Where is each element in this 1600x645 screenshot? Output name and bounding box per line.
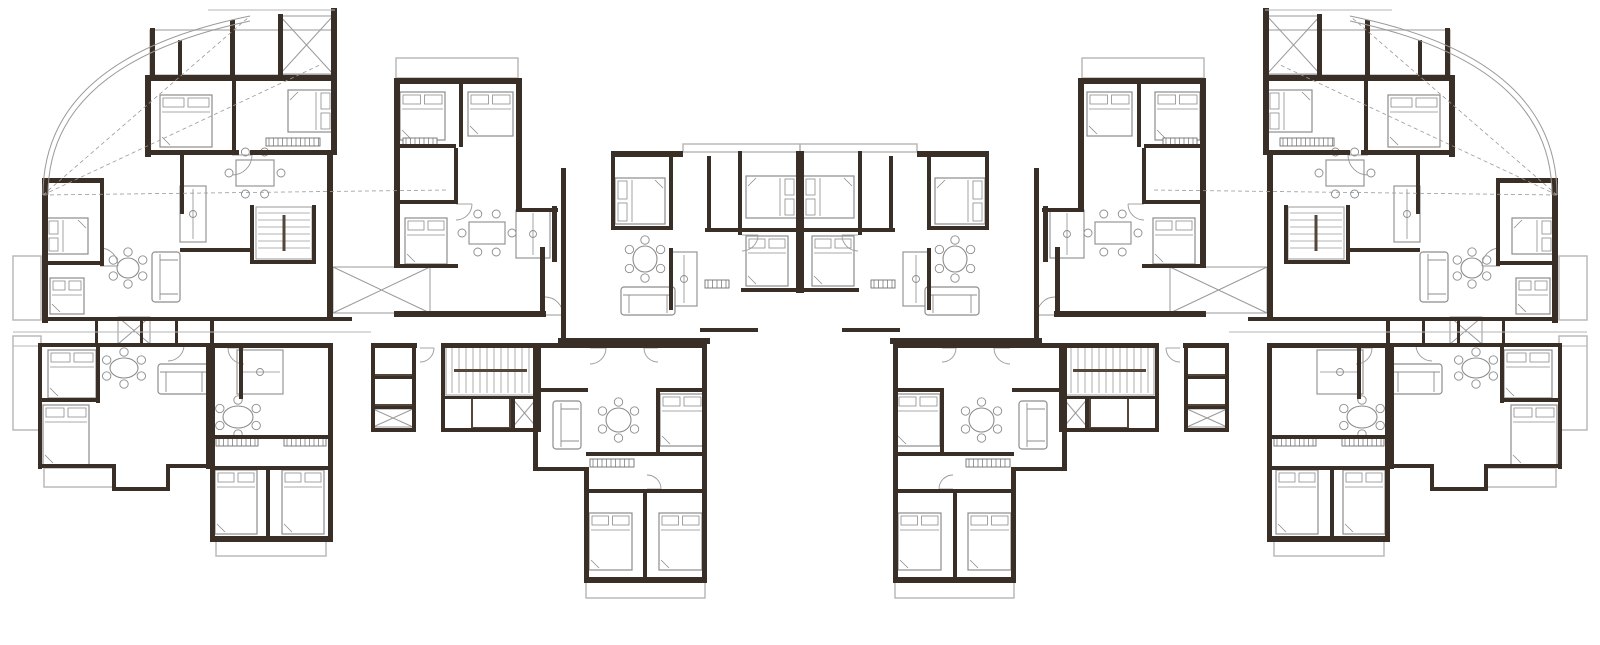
elevator-shaft [1187,377,1227,405]
wall-segment [1284,260,1350,264]
wall-segment [96,345,100,403]
wall-segment [669,248,673,310]
wall-segment [1059,396,1159,399]
chair-icon [120,348,128,356]
sofa-icon [1420,252,1448,302]
wall-segment [394,78,522,84]
wall-segment [1284,205,1288,263]
wall-segment [1496,178,1558,183]
wall-segment [210,343,333,348]
wall-segment [927,156,931,230]
sofa-icon [553,401,581,449]
wall-segment [1155,343,1159,432]
dining-table-round-icon [110,358,138,378]
chair-icon [1454,356,1462,364]
wall-segment [278,14,283,78]
wall-segment [112,487,170,491]
wall-segment [1502,398,1562,402]
wall-segment [38,343,42,469]
wall-segment [371,376,414,379]
floor-plan-svg [0,0,1600,645]
bed-icon [405,218,447,264]
chair-icon [216,421,224,429]
bed-icon [1153,218,1195,264]
chair-icon [252,421,260,429]
chair-icon [1100,210,1108,218]
chair-icon [492,210,500,218]
chair-icon [109,272,117,280]
wall-segment [1263,75,1455,81]
wall-segment [239,343,243,399]
chair-icon [951,274,959,282]
chair-icon [109,256,117,264]
wall-segment [1267,343,1390,348]
chair-icon [1340,421,1348,429]
chair-icon [458,229,466,237]
wall-segment [738,151,742,235]
wardrobe-hatch [266,138,320,146]
wall-segment [371,406,414,409]
chair-icon [277,169,285,177]
wall-segment [1183,343,1229,348]
dining-table-round-icon [633,246,657,272]
wall-segment [533,343,538,393]
wall-segment [1142,148,1146,204]
chair-icon [993,425,1001,433]
chair-icon [120,380,128,388]
chair-icon [656,264,664,272]
wall-segment [927,226,989,230]
bed-icon [659,513,702,570]
chair-icon [1472,380,1480,388]
wall-segment [889,156,893,232]
wall-segment [702,343,707,583]
chair-icon [1340,404,1348,412]
wall-segment [1558,343,1562,469]
wall-segment [1062,388,1067,471]
chair-icon [961,407,969,415]
wall-segment [842,328,900,332]
chair-icon [630,407,638,415]
dining-table-round-icon [969,408,994,432]
wall-segment [42,261,104,265]
wall-segment [533,388,538,471]
wall-segment [705,228,800,232]
wall-segment [894,388,944,392]
wall-segment [312,205,316,263]
wall-segment [210,343,215,541]
wall-segment [893,343,1067,348]
wall-segment [42,317,352,321]
wall-segment [1385,343,1390,541]
wall-segment [145,75,151,157]
dining-table-icon [1095,222,1131,244]
wall-segment [1011,467,1016,583]
wall-segment [1270,435,1390,439]
bed-icon [803,176,854,218]
elevator-shaft [373,377,413,405]
dining-table-round-icon [223,406,253,428]
bed-icon [935,178,985,224]
wall-segment [454,148,458,204]
wall-segment [1496,178,1500,266]
chair-icon [641,274,649,282]
bed-icon [812,236,854,286]
bed-icon [1343,470,1385,534]
wall-segment [38,464,116,468]
dining-table-round-icon [1461,258,1483,278]
wall-segment [511,396,515,430]
wall-segment [643,489,647,579]
wall-segment [584,467,589,583]
bed-icon [746,176,797,218]
wall-segment [707,156,711,232]
bed-icon [1267,90,1312,132]
chair-icon [1315,169,1323,177]
wall-segment [1054,311,1206,317]
wall-segment [394,144,456,148]
chair-icon [492,248,500,256]
wall-segment [145,150,239,155]
wall-segment [42,178,48,323]
bed-icon [1516,278,1550,314]
chair-icon [474,210,482,218]
wall-segment [669,156,673,230]
bed-icon [1504,350,1552,398]
bed-icon [400,92,445,140]
wall-segment [611,226,673,230]
chair-icon [1489,372,1497,380]
bed-icon [968,513,1011,570]
wall-segment [1430,464,1434,491]
wall-segment [394,264,458,268]
wall-segment [1346,205,1350,263]
wall-segment [250,260,316,264]
bed-icon [160,95,212,147]
chair-icon [1453,272,1461,280]
chair-icon [124,248,132,256]
wall-segment [441,343,541,348]
bed-icon [1087,92,1132,136]
plan-background [0,0,1600,645]
wall-segment [1317,14,1322,78]
wall-segment [552,206,557,262]
wall-segment [1012,388,1067,392]
wall-segment [180,152,184,214]
wall-segment [412,343,416,432]
wall-segment [1416,152,1420,214]
wall-segment [441,343,445,432]
wall-segment [250,150,337,155]
wall-segment [953,489,957,579]
wall-segment [896,452,1014,456]
wall-segment [210,466,330,470]
chair-icon [656,245,664,253]
bed-icon [1511,405,1557,465]
chair-icon [137,372,145,380]
wall-segment [441,428,541,432]
wall-segment [1267,536,1390,542]
wall-segment [180,248,252,252]
wall-segment [1484,464,1488,490]
wall-segment [38,343,212,347]
wall-segment [232,75,236,155]
bed-icon [589,513,632,570]
wall-segment [533,388,588,392]
wall-segment [540,247,545,315]
wall-segment [250,205,254,263]
wall-segment [210,536,333,542]
chair-icon [977,398,985,406]
wall-segment [1144,144,1206,148]
wall-segment [1225,343,1229,432]
wall-segment [741,288,800,292]
wall-segment [1484,464,1562,468]
chair-icon [614,434,622,442]
dining-table-round-icon [117,258,139,278]
chair-icon [935,245,943,253]
bed-icon [896,394,940,446]
chair-icon [1483,256,1491,264]
wall-segment [1034,168,1039,345]
wall-segment [1270,466,1390,470]
chair-icon [102,372,110,380]
chair-icon [951,236,959,244]
wall-segment [533,467,588,471]
bed-icon [898,513,941,570]
chair-icon [1118,248,1126,256]
dining-table-round-icon [943,246,967,272]
wall-segment [656,388,660,454]
wall-segment [331,75,337,155]
wall-segment [206,343,210,469]
wall-segment [371,428,416,432]
wall-segment [178,40,182,80]
chair-icon [225,169,233,177]
wall-segment [858,151,862,235]
wardrobe-hatch [966,459,1010,467]
stair-rail [283,215,286,251]
chair-icon [252,404,260,412]
wall-segment [166,464,210,468]
dining-table-icon [469,222,505,244]
chair-icon [1454,372,1462,380]
chair-icon [474,248,482,256]
chair-icon [241,190,249,198]
wall-segment [1142,200,1206,204]
wall-segment [656,388,706,392]
chair-icon [1376,421,1384,429]
wall-segment [394,148,400,268]
wall-segment [1055,247,1060,315]
wall-segment [1552,178,1558,323]
wall-segment [394,200,458,204]
wall-segment [1078,78,1206,84]
chair-icon [625,245,633,253]
wall-segment [927,248,931,310]
wall-segment [1364,75,1368,155]
wall-segment [1042,208,1084,212]
wall-segment [1449,75,1455,157]
bed-icon [48,350,96,398]
wall-segment [1365,20,1370,78]
wall-segment [1418,40,1422,80]
bed-icon [746,236,788,286]
wall-segment [1012,467,1067,471]
elevator-shaft [472,398,510,428]
wall-segment [985,151,989,230]
wall-segment [459,78,463,147]
stair-rail [454,369,527,372]
bed-icon [660,394,704,446]
wall-segment [1078,78,1084,152]
sofa-icon [152,252,180,302]
chair-icon [1331,190,1339,198]
elevator-shaft [1090,398,1128,428]
chair-icon [1367,169,1375,177]
wall-segment [371,343,375,432]
wall-segment [1184,343,1188,432]
wall-segment [394,311,546,317]
wall-segment [516,78,522,152]
bed-icon [615,178,665,224]
chair-icon [1351,190,1359,198]
wall-segment [1361,150,1455,155]
wall-segment [1059,428,1159,432]
wall-segment [940,388,944,454]
stair-rail [1073,369,1146,372]
wall-segment [800,228,895,232]
wall-segment [1496,261,1558,265]
wall-segment [328,343,333,541]
chair-icon [102,356,110,364]
wall-segment [1263,8,1269,78]
chair-icon [1472,348,1480,356]
chair-icon [1483,272,1491,280]
wall-segment [1186,376,1229,379]
wall-segment [1330,468,1334,538]
chair-icon [993,407,1001,415]
bed-icon [1388,95,1440,147]
chair-icon [1118,210,1126,218]
wall-segment [1348,248,1420,252]
wall-segment [1390,464,1434,468]
wall-segment [266,468,270,538]
wall-segment [145,75,337,81]
wall-segment [1267,343,1272,541]
chair-icon [1468,280,1476,288]
bed-icon [215,470,257,534]
wall-segment [210,435,330,439]
wall-segment [42,178,104,183]
chair-icon [966,245,974,253]
wall-segment [1500,345,1504,403]
bed-icon [282,470,324,534]
chair-icon [1376,404,1384,412]
wall-segment [230,20,235,78]
wall-segment [166,464,170,491]
bed-icon [1155,92,1200,140]
wall-segment [586,452,704,456]
wall-segment [331,8,337,78]
chair-icon [1134,229,1142,237]
sofa-icon [1019,401,1047,449]
bed-icon [43,405,89,465]
wall-segment [112,464,116,490]
stair-rail [1315,215,1318,251]
chair-icon [1100,248,1108,256]
wall-segment [1142,264,1206,268]
chair-icon [137,356,145,364]
chair-icon [977,434,985,442]
wardrobe-hatch [1280,138,1334,146]
chair-icon [935,264,943,272]
wall-segment [1043,206,1048,262]
chair-icon [1468,248,1476,256]
bed-icon [288,90,333,132]
chair-icon [961,425,969,433]
wall-segment [327,150,333,320]
chair-icon [625,264,633,272]
chair-icon [598,407,606,415]
elevator-shaft [1187,346,1227,375]
wall-segment [1059,343,1159,348]
wall-segment [893,343,898,583]
chair-icon [966,264,974,272]
wall-segment [1390,343,1394,469]
chair-icon [139,256,147,264]
wall-segment [441,396,541,399]
wall-segment [1430,487,1488,491]
wall-segment [1085,396,1089,430]
wall-segment [796,151,804,293]
wall-segment [100,178,104,266]
dining-table-round-icon [1347,406,1377,428]
chair-icon [139,272,147,280]
wall-segment [1357,343,1361,399]
wall-segment [516,208,558,212]
wall-segment [896,489,1014,493]
chair-icon [1453,256,1461,264]
wall-segment [371,343,417,348]
wall-segment [561,168,566,345]
chair-icon [124,280,132,288]
wall-segment [533,343,707,348]
bed-icon [1276,470,1318,534]
wall-segment [1062,343,1067,393]
wall-segment [1137,78,1141,147]
wall-segment [516,148,522,210]
dining-table-round-icon [606,408,631,432]
wardrobe-hatch [590,459,634,467]
wall-segment [1248,317,1558,321]
wall-segment [1078,148,1084,210]
wall-segment [38,398,98,402]
chair-icon [1489,356,1497,364]
dining-table-round-icon [1462,358,1490,378]
chair-icon [614,398,622,406]
elevator-shaft [373,346,413,375]
wall-segment [800,288,859,292]
chair-icon [1084,229,1092,237]
bed-icon [468,92,513,136]
wall-segment [700,328,758,332]
chair-icon [508,229,516,237]
bed-icon [50,278,84,314]
floor-plan [0,0,1600,645]
wall-segment [586,489,704,493]
wall-segment [1263,150,1350,155]
